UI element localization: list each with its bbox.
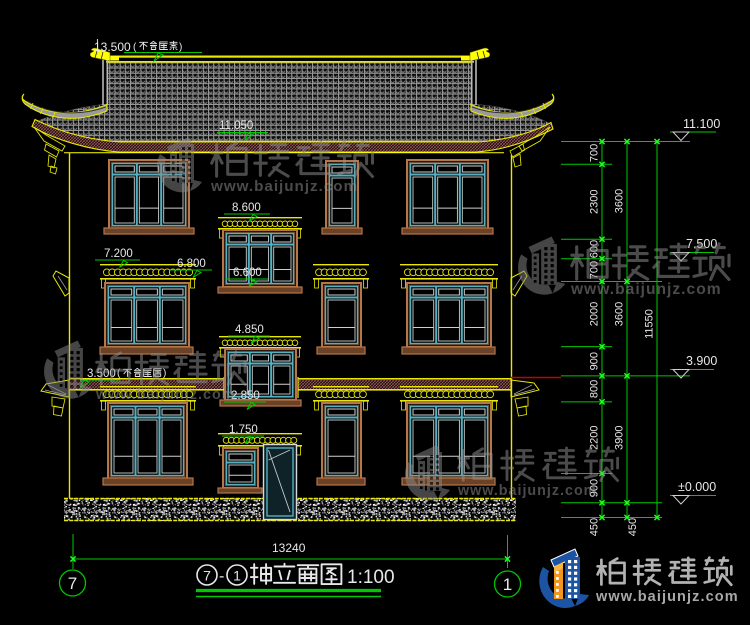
svg-text:7.200: 7.200 [104,248,133,260]
svg-text:1:100: 1:100 [347,567,395,588]
svg-text:1.750: 1.750 [229,424,258,436]
svg-text:450: 450 [589,518,601,536]
svg-text:1: 1 [503,575,512,594]
svg-text:450: 450 [627,518,639,536]
svg-text:7: 7 [203,568,211,584]
svg-text:4.850: 4.850 [235,324,264,336]
svg-text:): ) [163,368,166,379]
svg-text:800: 800 [589,380,601,398]
svg-text:www.baijunjz.com: www.baijunjz.com [595,589,739,605]
svg-text:www.baijunjz.com: www.baijunjz.com [210,178,358,195]
svg-text:13.500: 13.500 [94,40,131,54]
svg-text:3900: 3900 [614,425,626,449]
svg-text:700: 700 [589,144,601,162]
svg-text:6.800: 6.800 [177,258,206,270]
svg-text:3600: 3600 [614,189,626,213]
svg-text:11550: 11550 [644,309,656,339]
svg-text:6.600: 6.600 [233,267,262,279]
svg-text:www.baijunjz.com: www.baijunjz.com [95,387,235,403]
svg-text:1: 1 [233,568,241,584]
svg-text:11.050: 11.050 [219,120,253,132]
svg-text:3600: 3600 [614,302,626,326]
svg-text:±0.000: ±0.000 [678,480,716,494]
svg-text:2200: 2200 [589,425,601,449]
svg-text:www.baijunjz.com: www.baijunjz.com [457,483,597,499]
svg-text:3.900: 3.900 [686,354,717,368]
svg-text:13240: 13240 [272,541,306,555]
svg-text:): ) [179,42,182,53]
svg-text:2300: 2300 [589,189,601,213]
svg-text:8.600: 8.600 [232,202,261,214]
svg-text:7: 7 [68,574,77,593]
svg-text:900: 900 [589,352,601,370]
svg-text:2000: 2000 [589,302,601,326]
svg-text:11.100: 11.100 [683,117,720,131]
svg-text:www.baijunjz.com: www.baijunjz.com [570,281,722,298]
svg-text:-: - [219,568,224,585]
